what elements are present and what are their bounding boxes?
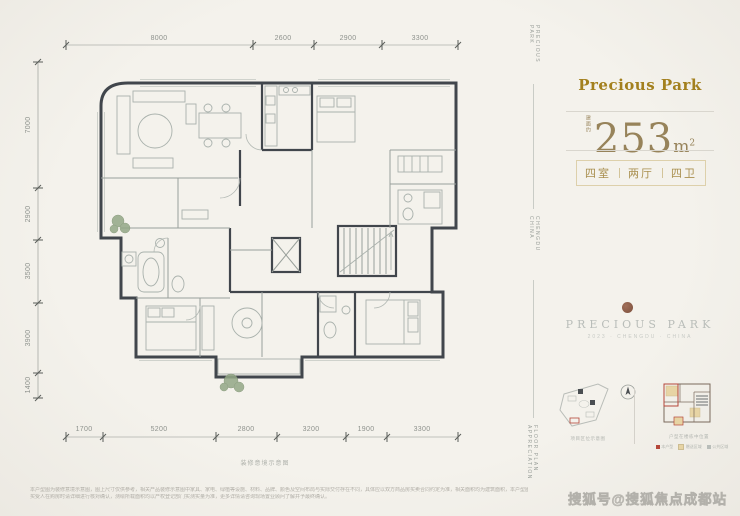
dim-left-2: 2900 <box>25 206 32 223</box>
badge-rooms: 四室 <box>585 165 611 181</box>
area-unit: m2 <box>673 137 695 157</box>
divider-rule-bottom <box>566 150 714 151</box>
window-lines <box>98 80 451 361</box>
rail-text-bottom: FLOOR PLAN APPRECIATION <box>526 425 538 487</box>
key-plan-legend: 本户型 赠送区域 公共区域 <box>646 444 738 450</box>
legend-chip-gray <box>707 445 711 449</box>
legend-chip-red <box>656 445 660 449</box>
area-prefix: 建面约 <box>585 114 592 134</box>
divider-rule-top <box>566 111 714 112</box>
legend-label: 赠送区域 <box>686 444 702 450</box>
dim-left-1: 7000 <box>25 117 32 134</box>
plan-caption: 装修意境示意图 <box>210 458 320 467</box>
badge-baths: 四卫 <box>671 165 697 181</box>
site-plan-minimap <box>556 380 640 432</box>
badge-halls: 两厅 <box>628 165 654 181</box>
disclaimer-text: 本户型图为装修意境示意图，图上尺寸仅供参考，相关产品装修示意图中家具、家电、绿植… <box>30 487 528 501</box>
unit-key-plan-caption: 户型在楼栋中位置 <box>650 434 728 440</box>
dim-top-3: 2900 <box>340 35 357 42</box>
rail-divider-2 <box>533 280 534 418</box>
dim-top-2: 2600 <box>275 35 292 42</box>
legend-item: 赠送区域 <box>678 444 702 450</box>
dim-left-4: 3900 <box>25 330 32 347</box>
partition-walls <box>101 150 456 357</box>
floor-plan-drawing: 8000 2600 2900 3300 7000 2900 3500 3900 … <box>0 0 500 480</box>
rail-divider-1 <box>533 84 534 209</box>
legend-label: 公共区域 <box>712 444 728 450</box>
dim-bottom-5: 1900 <box>358 426 375 433</box>
brand-logo-icon <box>622 302 633 313</box>
brand-wordmark: Precious Park <box>560 76 720 94</box>
dim-left-5: 1400 <box>25 377 32 394</box>
layout-badge: 四室 两厅 四卫 <box>576 160 706 186</box>
watermark-text: 搜狐号@搜狐焦点成都站 <box>568 488 738 508</box>
outer-walls <box>101 83 456 377</box>
disclaimer-line-2: 买受人在购房时请详细进行核对确认，测绘所载面积均以产权登记部门实测实量为准，更多… <box>30 494 528 501</box>
dim-top-4: 3300 <box>412 35 429 42</box>
elevator-icon <box>272 238 300 272</box>
badge-separator <box>619 168 620 178</box>
legend-item: 公共区域 <box>707 444 729 450</box>
legend-item: 本户型 <box>656 444 674 450</box>
rail-text-top: PRECIOUS PARK <box>528 25 540 77</box>
area-value: 253 <box>594 116 673 162</box>
brand-serif-subtitle: 2023 · CHENGDU · CHINA <box>556 334 724 340</box>
dim-bottom-1: 1700 <box>76 426 93 433</box>
dim-bottom-2: 5200 <box>151 426 168 433</box>
rail-text-middle: CHENGDU CHINA <box>528 216 540 271</box>
dimension-chain-bottom: 1700 5200 2800 3200 1900 3300 <box>63 426 461 442</box>
dim-left-3: 3500 <box>25 263 32 280</box>
plant-icons <box>110 215 244 392</box>
dim-bottom-6: 3300 <box>414 426 431 433</box>
dim-bottom-3: 2800 <box>238 426 255 433</box>
minimap-divider <box>634 388 635 444</box>
legend-chip-tan <box>678 444 684 450</box>
dim-top-1: 8000 <box>151 35 168 42</box>
unit-key-plan <box>650 378 728 430</box>
dimension-chain-top: 8000 2600 2900 3300 <box>63 35 461 50</box>
dimension-chain-left: 7000 2900 3500 3900 1400 <box>25 59 43 401</box>
furniture <box>117 86 442 374</box>
site-plan-caption: 项目区位示意图 <box>556 436 620 442</box>
disclaimer-line-1: 本户型图为装修意境示意图，图上尺寸仅供参考，相关产品装修示意图中家具、家电、绿植… <box>30 487 528 494</box>
legend-label: 本户型 <box>661 444 673 450</box>
badge-separator <box>662 168 663 178</box>
north-arrow-icon <box>621 385 635 399</box>
floorplan-poster: { "brand": { "wordmark": "Precious Park"… <box>0 0 740 516</box>
stairs-icon <box>340 228 394 274</box>
brand-serif-name: PRECIOUS PARK <box>556 318 724 331</box>
dim-bottom-4: 3200 <box>303 426 320 433</box>
